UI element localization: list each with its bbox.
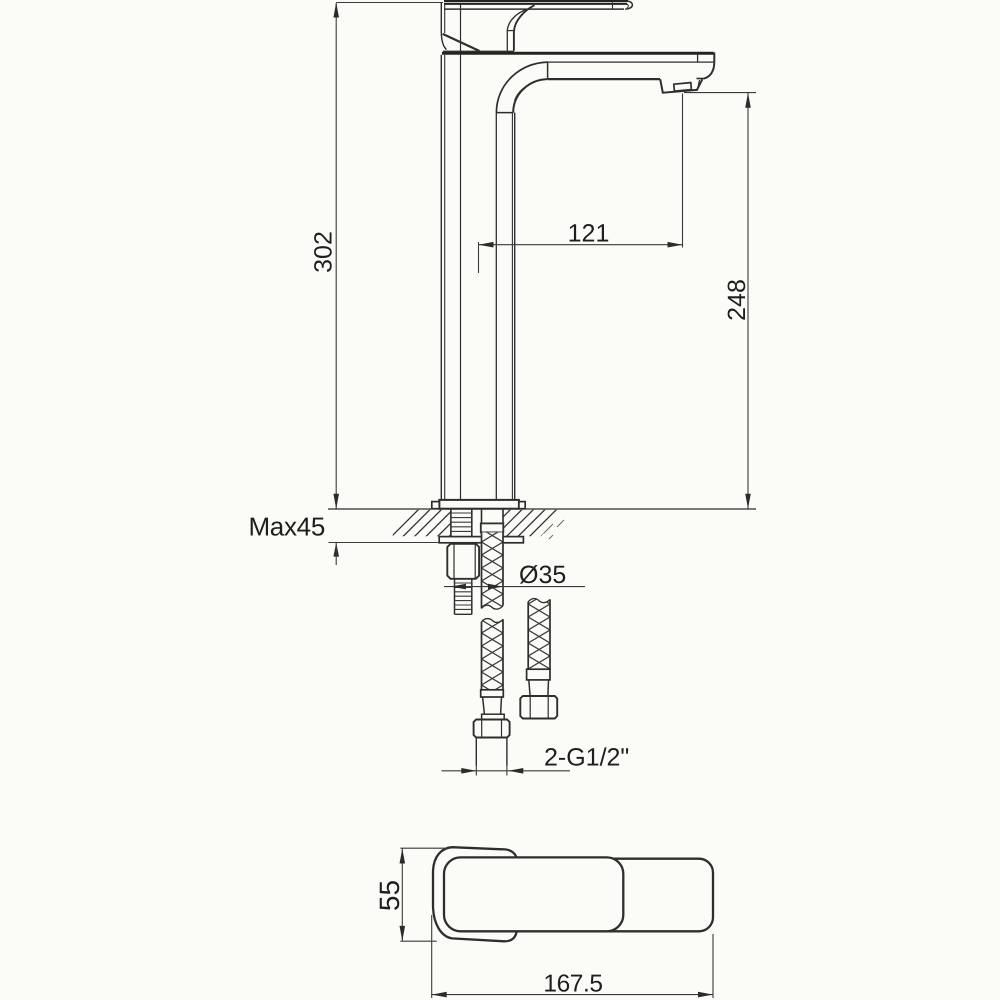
- svg-text:Ø35: Ø35: [519, 561, 566, 589]
- svg-text:2-G1/2": 2-G1/2": [544, 744, 629, 772]
- svg-text:167.5: 167.5: [543, 971, 602, 998]
- svg-text:Max45: Max45: [248, 512, 325, 542]
- svg-text:55: 55: [374, 880, 405, 911]
- svg-text:121: 121: [568, 220, 610, 248]
- svg-text:302: 302: [310, 231, 338, 273]
- svg-text:248: 248: [723, 279, 751, 321]
